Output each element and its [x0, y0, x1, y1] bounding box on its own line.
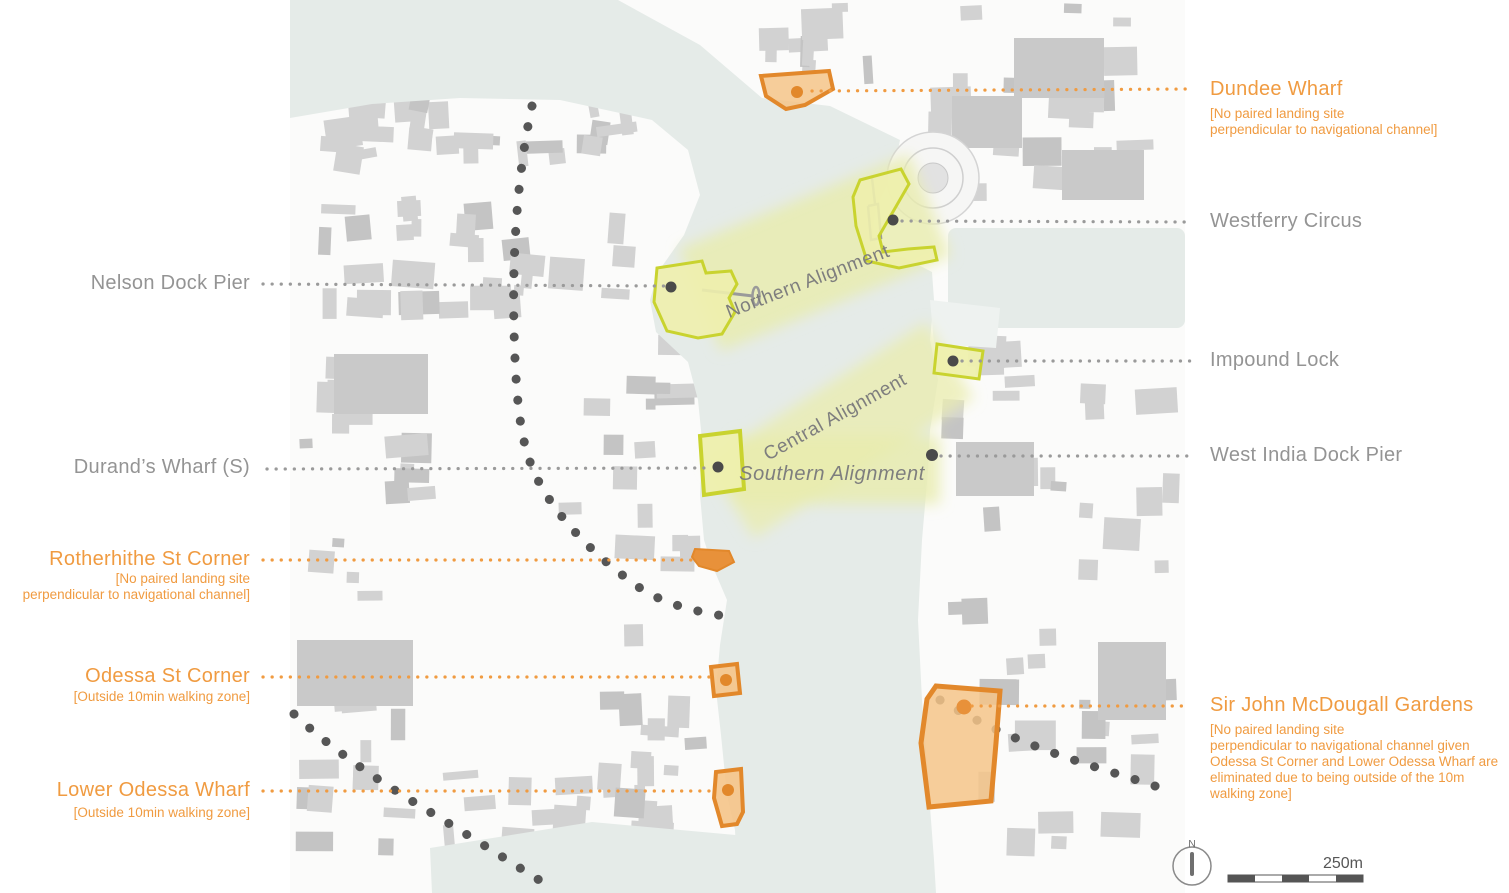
- site-nelson-dock-pier: [654, 261, 737, 338]
- site-dot-nelson: [666, 282, 677, 293]
- scale-label: 250m: [1323, 855, 1363, 872]
- note-lower-odessa-wharf: [Outside 10min walking zone]: [0, 805, 250, 821]
- label-durands-wharf: Durand’s Wharf (S): [74, 456, 250, 479]
- label-dundee-wharf: Dundee Wharf: [1210, 78, 1343, 101]
- scale-bar: 250m: [1228, 855, 1363, 882]
- site-dot-durands: [713, 462, 724, 473]
- site-impound-lock: [934, 344, 983, 379]
- site-dot-lower-odessa: [722, 784, 734, 796]
- label-rotherhithe-st-corner: Rotherhithe St Corner: [49, 548, 250, 571]
- site-dot-impound: [948, 356, 959, 367]
- site-dot-mcdougall: [957, 700, 972, 715]
- north-label: N: [1188, 838, 1196, 850]
- site-lower-odessa-wharf: [714, 769, 743, 826]
- label-westferry-circus: Westferry Circus: [1210, 210, 1362, 233]
- label-nelson-dock-pier: Nelson Dock Pier: [91, 272, 250, 295]
- dock-entrance-channel: [930, 300, 1000, 348]
- site-dot-west-india: [926, 449, 938, 461]
- label-southern-alignment: Southern Alignment: [739, 463, 926, 485]
- label-west-india-dock-pier: West India Dock Pier: [1210, 444, 1402, 467]
- site-durands-wharf: [700, 431, 744, 495]
- note-odessa-st-corner: [Outside 10min walking zone]: [0, 689, 250, 705]
- site-dot-westferry: [888, 215, 899, 226]
- label-mcdougall-gardens: Sir John McDougall Gardens: [1210, 694, 1473, 717]
- label-odessa-st-corner: Odessa St Corner: [85, 665, 250, 688]
- note-rotherhithe-st-corner: [No paired landing site perpendicular to…: [0, 571, 250, 603]
- label-lower-odessa-wharf: Lower Odessa Wharf: [57, 779, 250, 802]
- site-dot-odessa: [720, 674, 732, 686]
- site-dot-dundee: [791, 86, 803, 98]
- note-mcdougall-gardens: [No paired landing site perpendicular to…: [1210, 722, 1509, 802]
- note-dundee-wharf: [No paired landing site perpendicular to…: [1210, 106, 1509, 138]
- river-crossing-map-figure: Northern Alignment Central Alignment Sou…: [0, 0, 1509, 893]
- label-impound-lock: Impound Lock: [1210, 349, 1339, 372]
